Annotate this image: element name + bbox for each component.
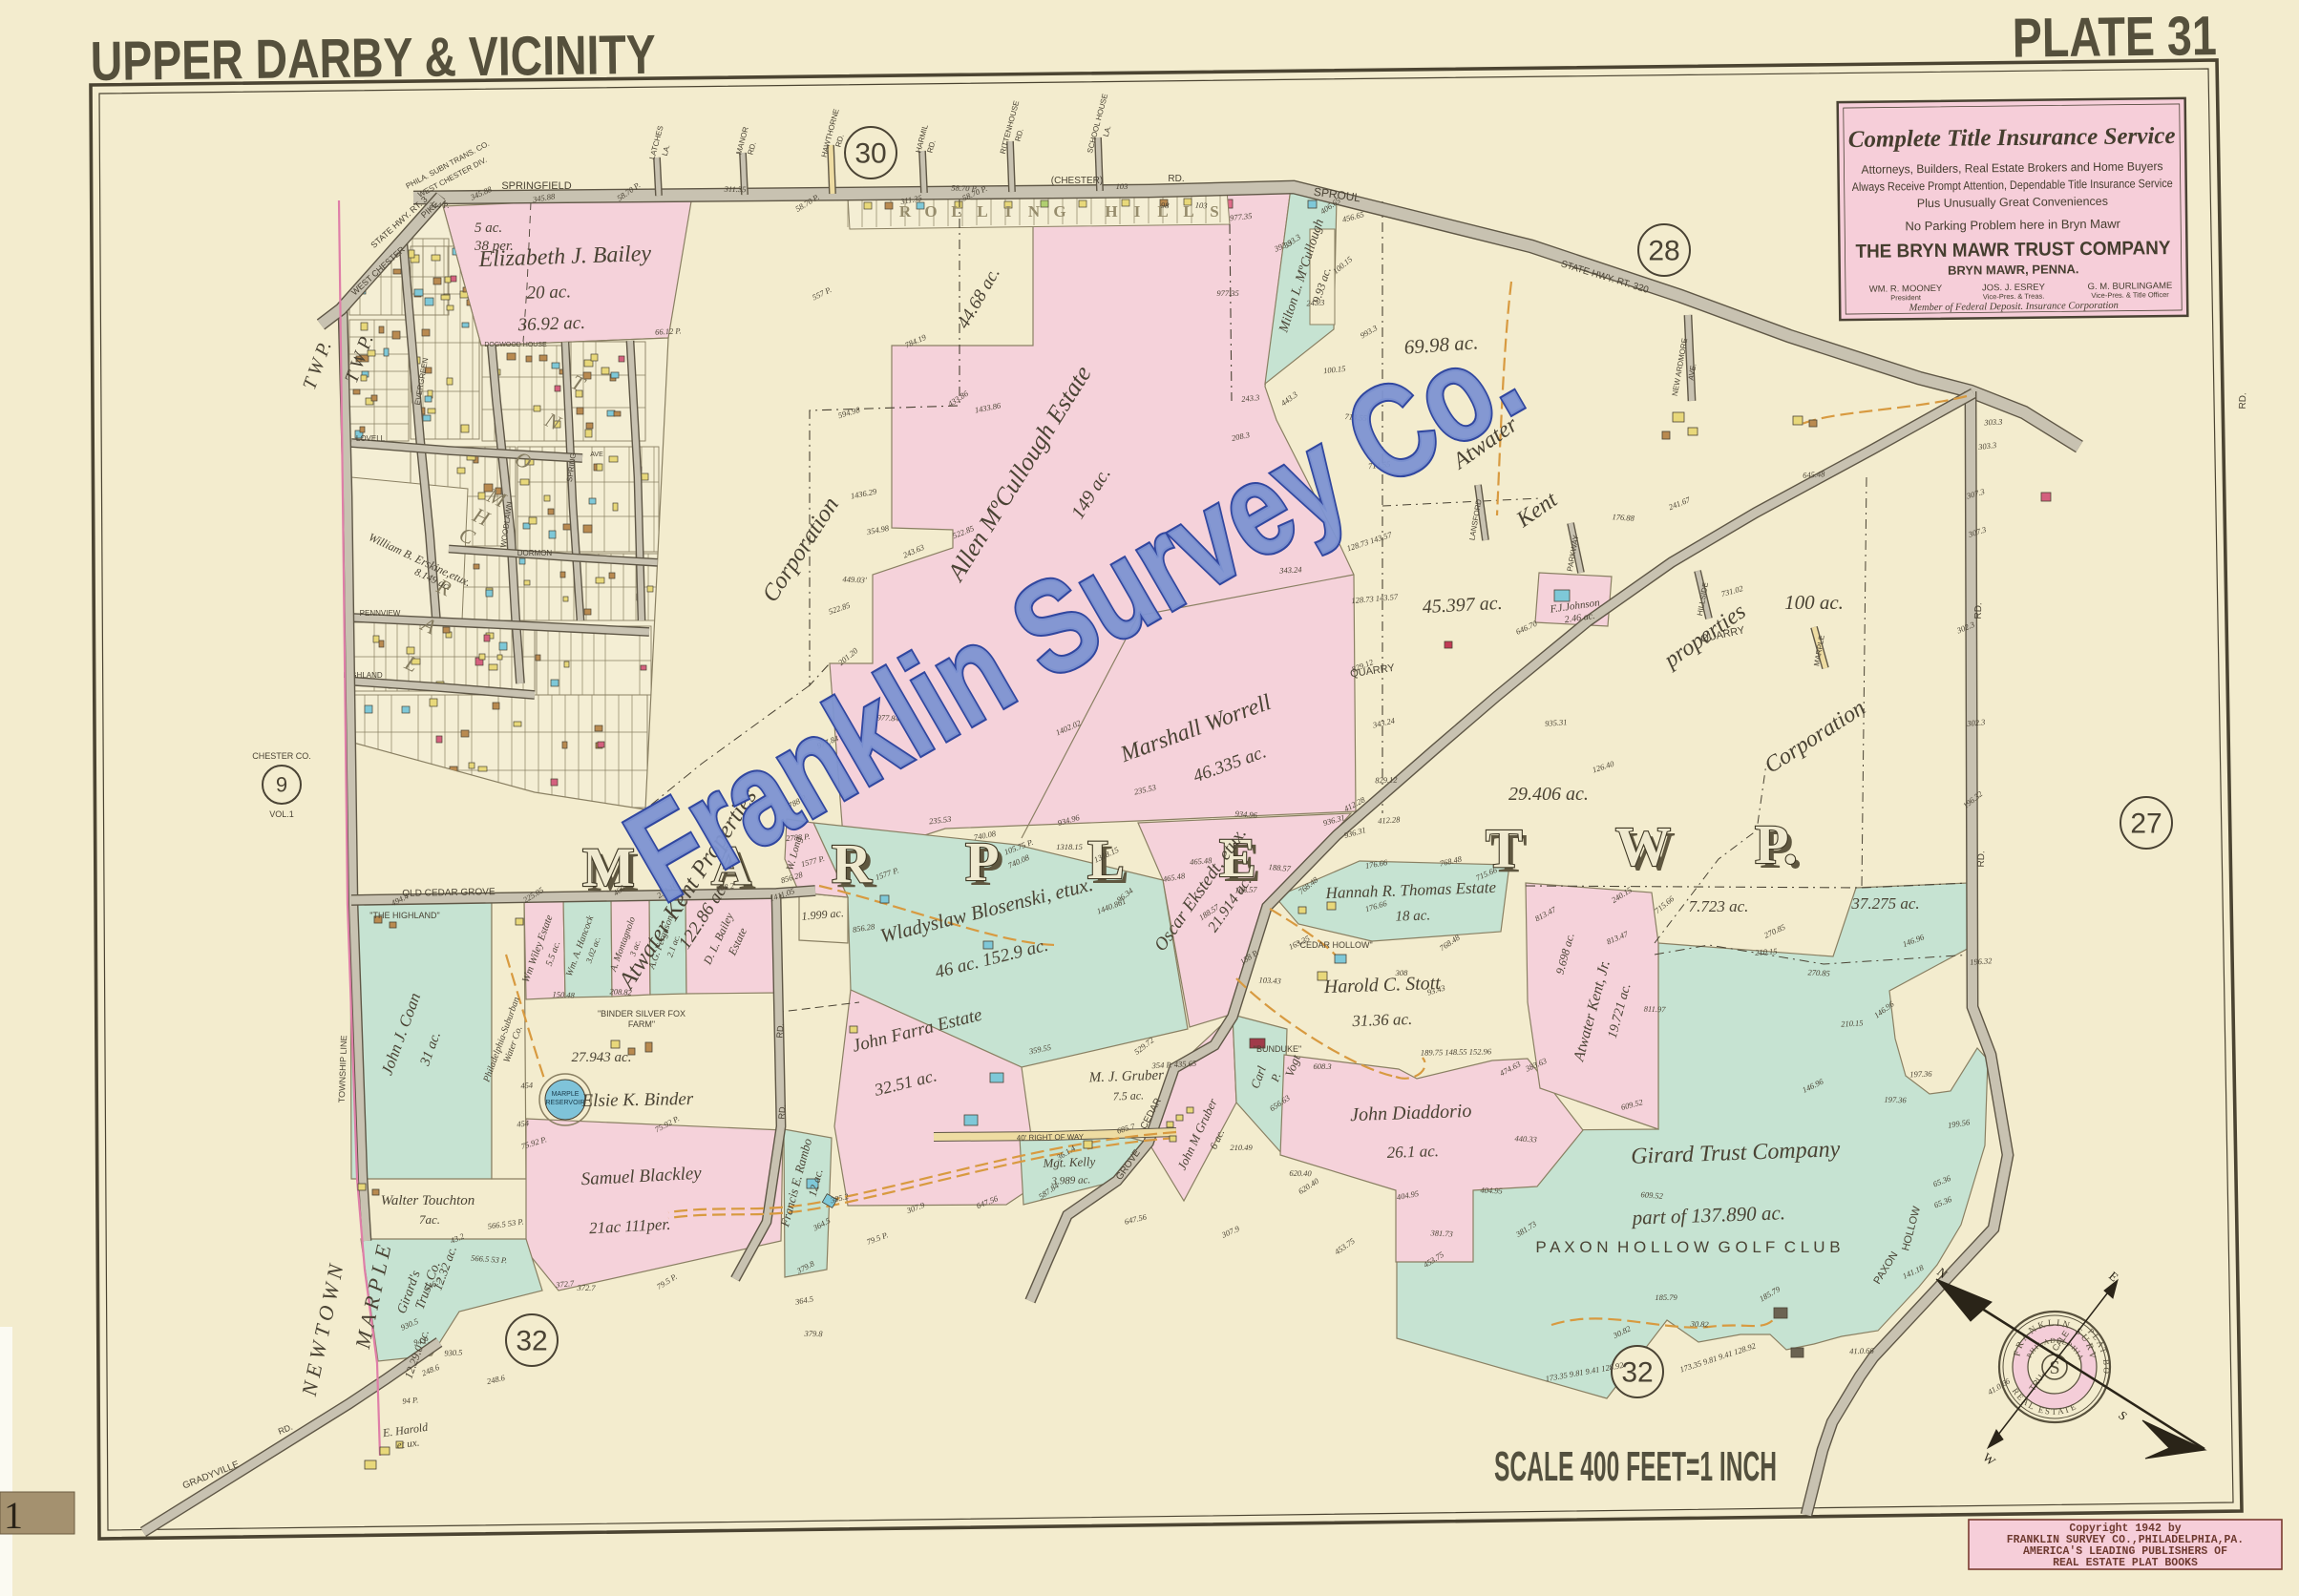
svg-text:President: President xyxy=(1890,293,1922,302)
svg-text:R: R xyxy=(832,832,873,894)
svg-text:Vice-Pres. & Title Officer: Vice-Pres. & Title Officer xyxy=(2091,290,2169,300)
svg-text:1: 1 xyxy=(4,1494,23,1537)
svg-text:28: 28 xyxy=(1648,236,1679,267)
svg-text:379.8: 379.8 xyxy=(803,1329,823,1338)
svg-text:150.48: 150.48 xyxy=(552,989,576,999)
svg-text:243.3: 243.3 xyxy=(1241,392,1260,404)
svg-text:196.32: 196.32 xyxy=(1970,955,1993,967)
svg-text:210.15: 210.15 xyxy=(1755,946,1778,957)
svg-text:"BINDER SILVER FOX: "BINDER SILVER FOX xyxy=(598,1009,685,1018)
svg-text:H: H xyxy=(1105,202,1117,220)
svg-text:DOGWOOD HOUSE: DOGWOOD HOUSE xyxy=(484,342,547,348)
svg-text:66.12 P.: 66.12 P. xyxy=(655,325,682,336)
svg-text:L: L xyxy=(977,202,987,220)
svg-text:"THE HIGHLAND": "THE HIGHLAND" xyxy=(369,911,439,920)
svg-text:36.92 ac.: 36.92 ac. xyxy=(517,313,585,335)
svg-text:31.36 ac.: 31.36 ac. xyxy=(1351,1010,1412,1030)
svg-text:412.28: 412.28 xyxy=(1378,814,1402,826)
svg-text:243.3: 243.3 xyxy=(1306,298,1325,308)
svg-text:AVE: AVE xyxy=(590,451,603,458)
svg-text:103: 103 xyxy=(1195,200,1208,211)
svg-text:REAL ESTATE PLAT BOOKS: REAL ESTATE PLAT BOOKS xyxy=(2053,1557,2198,1569)
svg-text:P A X O N H O L L O W G O L: P A X O N H O L L O W G O L F C L U B xyxy=(1535,1238,1840,1256)
svg-text:608.3: 608.3 xyxy=(1313,1061,1331,1071)
svg-text:O: O xyxy=(924,202,937,220)
svg-text:344 P.: 344 P. xyxy=(428,200,449,210)
svg-text:94 P.: 94 P. xyxy=(402,1395,419,1405)
svg-text:30.82: 30.82 xyxy=(1689,1318,1709,1329)
svg-text:PENNVIEW: PENNVIEW xyxy=(360,609,401,618)
svg-text:SPRINGFIELD: SPRINGFIELD xyxy=(501,180,571,192)
svg-text:RD.: RD. xyxy=(776,1104,787,1120)
svg-text:811.97: 811.97 xyxy=(1644,1004,1667,1015)
svg-text:L: L xyxy=(951,202,961,220)
svg-text:197.36: 197.36 xyxy=(1909,1069,1932,1080)
svg-text:P.: P. xyxy=(1755,813,1798,875)
svg-text:Vice-Pres. & Treas.: Vice-Pres. & Treas. xyxy=(1983,292,2045,302)
svg-text:449.03': 449.03' xyxy=(842,575,867,585)
svg-text:M. J. Gruber: M. J. Gruber xyxy=(1087,1068,1164,1086)
svg-text:935.31: 935.31 xyxy=(1545,717,1568,728)
svg-text:210.15: 210.15 xyxy=(1841,1018,1864,1028)
svg-text:18 ac.: 18 ac. xyxy=(1395,908,1430,924)
svg-text:454: 454 xyxy=(517,1118,531,1129)
svg-text:L: L xyxy=(1183,202,1193,220)
svg-text:210.49: 210.49 xyxy=(1230,1143,1253,1152)
svg-text:7.5 ac.: 7.5 ac. xyxy=(1112,1088,1144,1102)
svg-text:RESERVOIR: RESERVOIR xyxy=(545,1100,584,1106)
svg-text:27: 27 xyxy=(2130,808,2162,840)
svg-text:270.85: 270.85 xyxy=(1807,967,1830,977)
svg-text:1318.15: 1318.15 xyxy=(1056,842,1083,851)
svg-text:311.35: 311.35 xyxy=(724,184,747,194)
svg-text:"BUNDUKE": "BUNDUKE" xyxy=(1254,1044,1301,1054)
svg-text:30: 30 xyxy=(854,138,886,170)
svg-text:CHESTER CO.: CHESTER CO. xyxy=(252,751,311,761)
svg-text:40' RIGHT OF WAY: 40' RIGHT OF WAY xyxy=(1017,1132,1085,1142)
svg-text:32: 32 xyxy=(1621,1357,1653,1389)
svg-text:RD.: RD. xyxy=(1168,174,1184,184)
svg-text:RD.: RD. xyxy=(1973,602,1985,619)
svg-text:RD.: RD. xyxy=(2238,392,2249,409)
svg-text:37.275 ac.: 37.275 ac. xyxy=(1850,894,1919,913)
svg-text:645.48: 645.48 xyxy=(1803,469,1826,480)
svg-text:188.57: 188.57 xyxy=(1268,862,1292,873)
svg-text:S: S xyxy=(1210,202,1218,220)
svg-text:176.88: 176.88 xyxy=(1612,512,1635,523)
svg-text:M: M xyxy=(582,836,635,898)
svg-text:185.79: 185.79 xyxy=(1655,1292,1677,1302)
svg-text:I: I xyxy=(1134,202,1141,220)
svg-text:41.0.66: 41.0.66 xyxy=(1849,1346,1875,1356)
svg-text:No Parking Problem here in Bry: No Parking Problem here in Bryn Mawr xyxy=(1905,217,2120,234)
svg-text:DORMON: DORMON xyxy=(517,549,553,557)
svg-text:829.12: 829.12 xyxy=(1375,775,1398,786)
svg-text:9: 9 xyxy=(276,773,287,797)
svg-text:303.3: 303.3 xyxy=(1983,417,2003,428)
svg-text:Plus Unusually Great Convenien: Plus Unusually Great Conveniences xyxy=(1917,195,2108,210)
svg-text:7ac.: 7ac. xyxy=(419,1212,440,1227)
svg-text:930.5: 930.5 xyxy=(444,1348,463,1358)
svg-text:404.95: 404.95 xyxy=(1480,1186,1503,1196)
svg-text:RD.: RD. xyxy=(774,1023,785,1039)
svg-text:VOL.1: VOL.1 xyxy=(269,809,294,819)
svg-text:977.35: 977.35 xyxy=(1216,288,1238,298)
svg-text:27.943 ac.: 27.943 ac. xyxy=(572,1050,632,1065)
svg-text:609.52: 609.52 xyxy=(1640,1189,1664,1201)
svg-text:W: W xyxy=(1615,815,1671,877)
svg-text:372.7: 372.7 xyxy=(576,1283,596,1292)
svg-text:G: G xyxy=(1053,202,1065,220)
svg-text:38 per.: 38 per. xyxy=(474,239,514,254)
svg-text:32: 32 xyxy=(516,1326,547,1357)
svg-text:98: 98 xyxy=(1161,200,1171,210)
svg-text:THE BRYN MAWR TRUST COMPANY: THE BRYN MAWR TRUST COMPANY xyxy=(1855,238,2171,262)
svg-text:308: 308 xyxy=(1395,968,1409,977)
svg-text:381.73: 381.73 xyxy=(1429,1228,1453,1238)
svg-text:620.40: 620.40 xyxy=(1289,1168,1312,1178)
svg-text:Walter Touchton: Walter Touchton xyxy=(381,1193,475,1208)
svg-text:302.3: 302.3 xyxy=(1966,717,1986,728)
svg-text:58.70 P.: 58.70 P. xyxy=(951,183,978,194)
svg-text:Complete Title Insurance Servi: Complete Title Insurance Service xyxy=(1848,123,2176,153)
svg-text:197.36: 197.36 xyxy=(1884,1095,1907,1105)
svg-text:20 ac.: 20 ac. xyxy=(526,282,571,304)
svg-text:100 ac.: 100 ac. xyxy=(1784,591,1844,614)
svg-text:LOVELL: LOVELL xyxy=(356,434,386,443)
svg-text:UPPER DARBY & VICINITY: UPPER DARBY & VICINITY xyxy=(90,24,656,93)
svg-text:45.397 ac.: 45.397 ac. xyxy=(1422,593,1503,618)
svg-text:189.75 148.55 152.96: 189.75 148.55 152.96 xyxy=(1421,1046,1492,1057)
svg-text:29.406 ac.: 29.406 ac. xyxy=(1508,784,1589,805)
svg-text:(CHESTER): (CHESTER) xyxy=(1051,176,1103,186)
svg-text:454: 454 xyxy=(520,1080,534,1090)
svg-text:I: I xyxy=(1005,202,1012,220)
svg-text:103: 103 xyxy=(1116,181,1128,191)
svg-text:103.43: 103.43 xyxy=(1258,975,1281,985)
svg-text:Mgt. Kelly: Mgt. Kelly xyxy=(1042,1154,1096,1170)
svg-text:Harold C. Stott: Harold C. Stott xyxy=(1322,973,1441,997)
svg-text:OLD CEDAR GROVE: OLD CEDAR GROVE xyxy=(402,887,496,899)
svg-text:PLATE 31: PLATE 31 xyxy=(2012,5,2217,70)
svg-text:440.33: 440.33 xyxy=(1514,1133,1537,1144)
svg-text:RD.: RD. xyxy=(1976,850,1988,868)
svg-text:7.723 ac.: 7.723 ac. xyxy=(1689,897,1749,915)
svg-text:Elsie K. Binder: Elsie K. Binder xyxy=(580,1089,694,1111)
svg-text:SCALE 400 FEET=1 INCH: SCALE 400 FEET=1 INCH xyxy=(1494,1443,1777,1490)
svg-text:934.96: 934.96 xyxy=(1234,808,1258,820)
svg-text:208.82: 208.82 xyxy=(609,986,633,997)
svg-text:FARM": FARM" xyxy=(628,1019,655,1029)
svg-text:BRYN MAWR, PENNA.: BRYN MAWR, PENNA. xyxy=(1948,262,2079,278)
svg-text:John Diaddorio: John Diaddorio xyxy=(1350,1101,1472,1125)
svg-text:5 ac.: 5 ac. xyxy=(475,220,502,236)
svg-text:N: N xyxy=(1028,202,1041,220)
svg-text:MARPLE: MARPLE xyxy=(552,1091,580,1098)
svg-text:26.1 ac.: 26.1 ac. xyxy=(1386,1142,1439,1162)
svg-text:168.57: 168.57 xyxy=(1234,885,1257,894)
svg-text:465.48: 465.48 xyxy=(1190,855,1213,867)
